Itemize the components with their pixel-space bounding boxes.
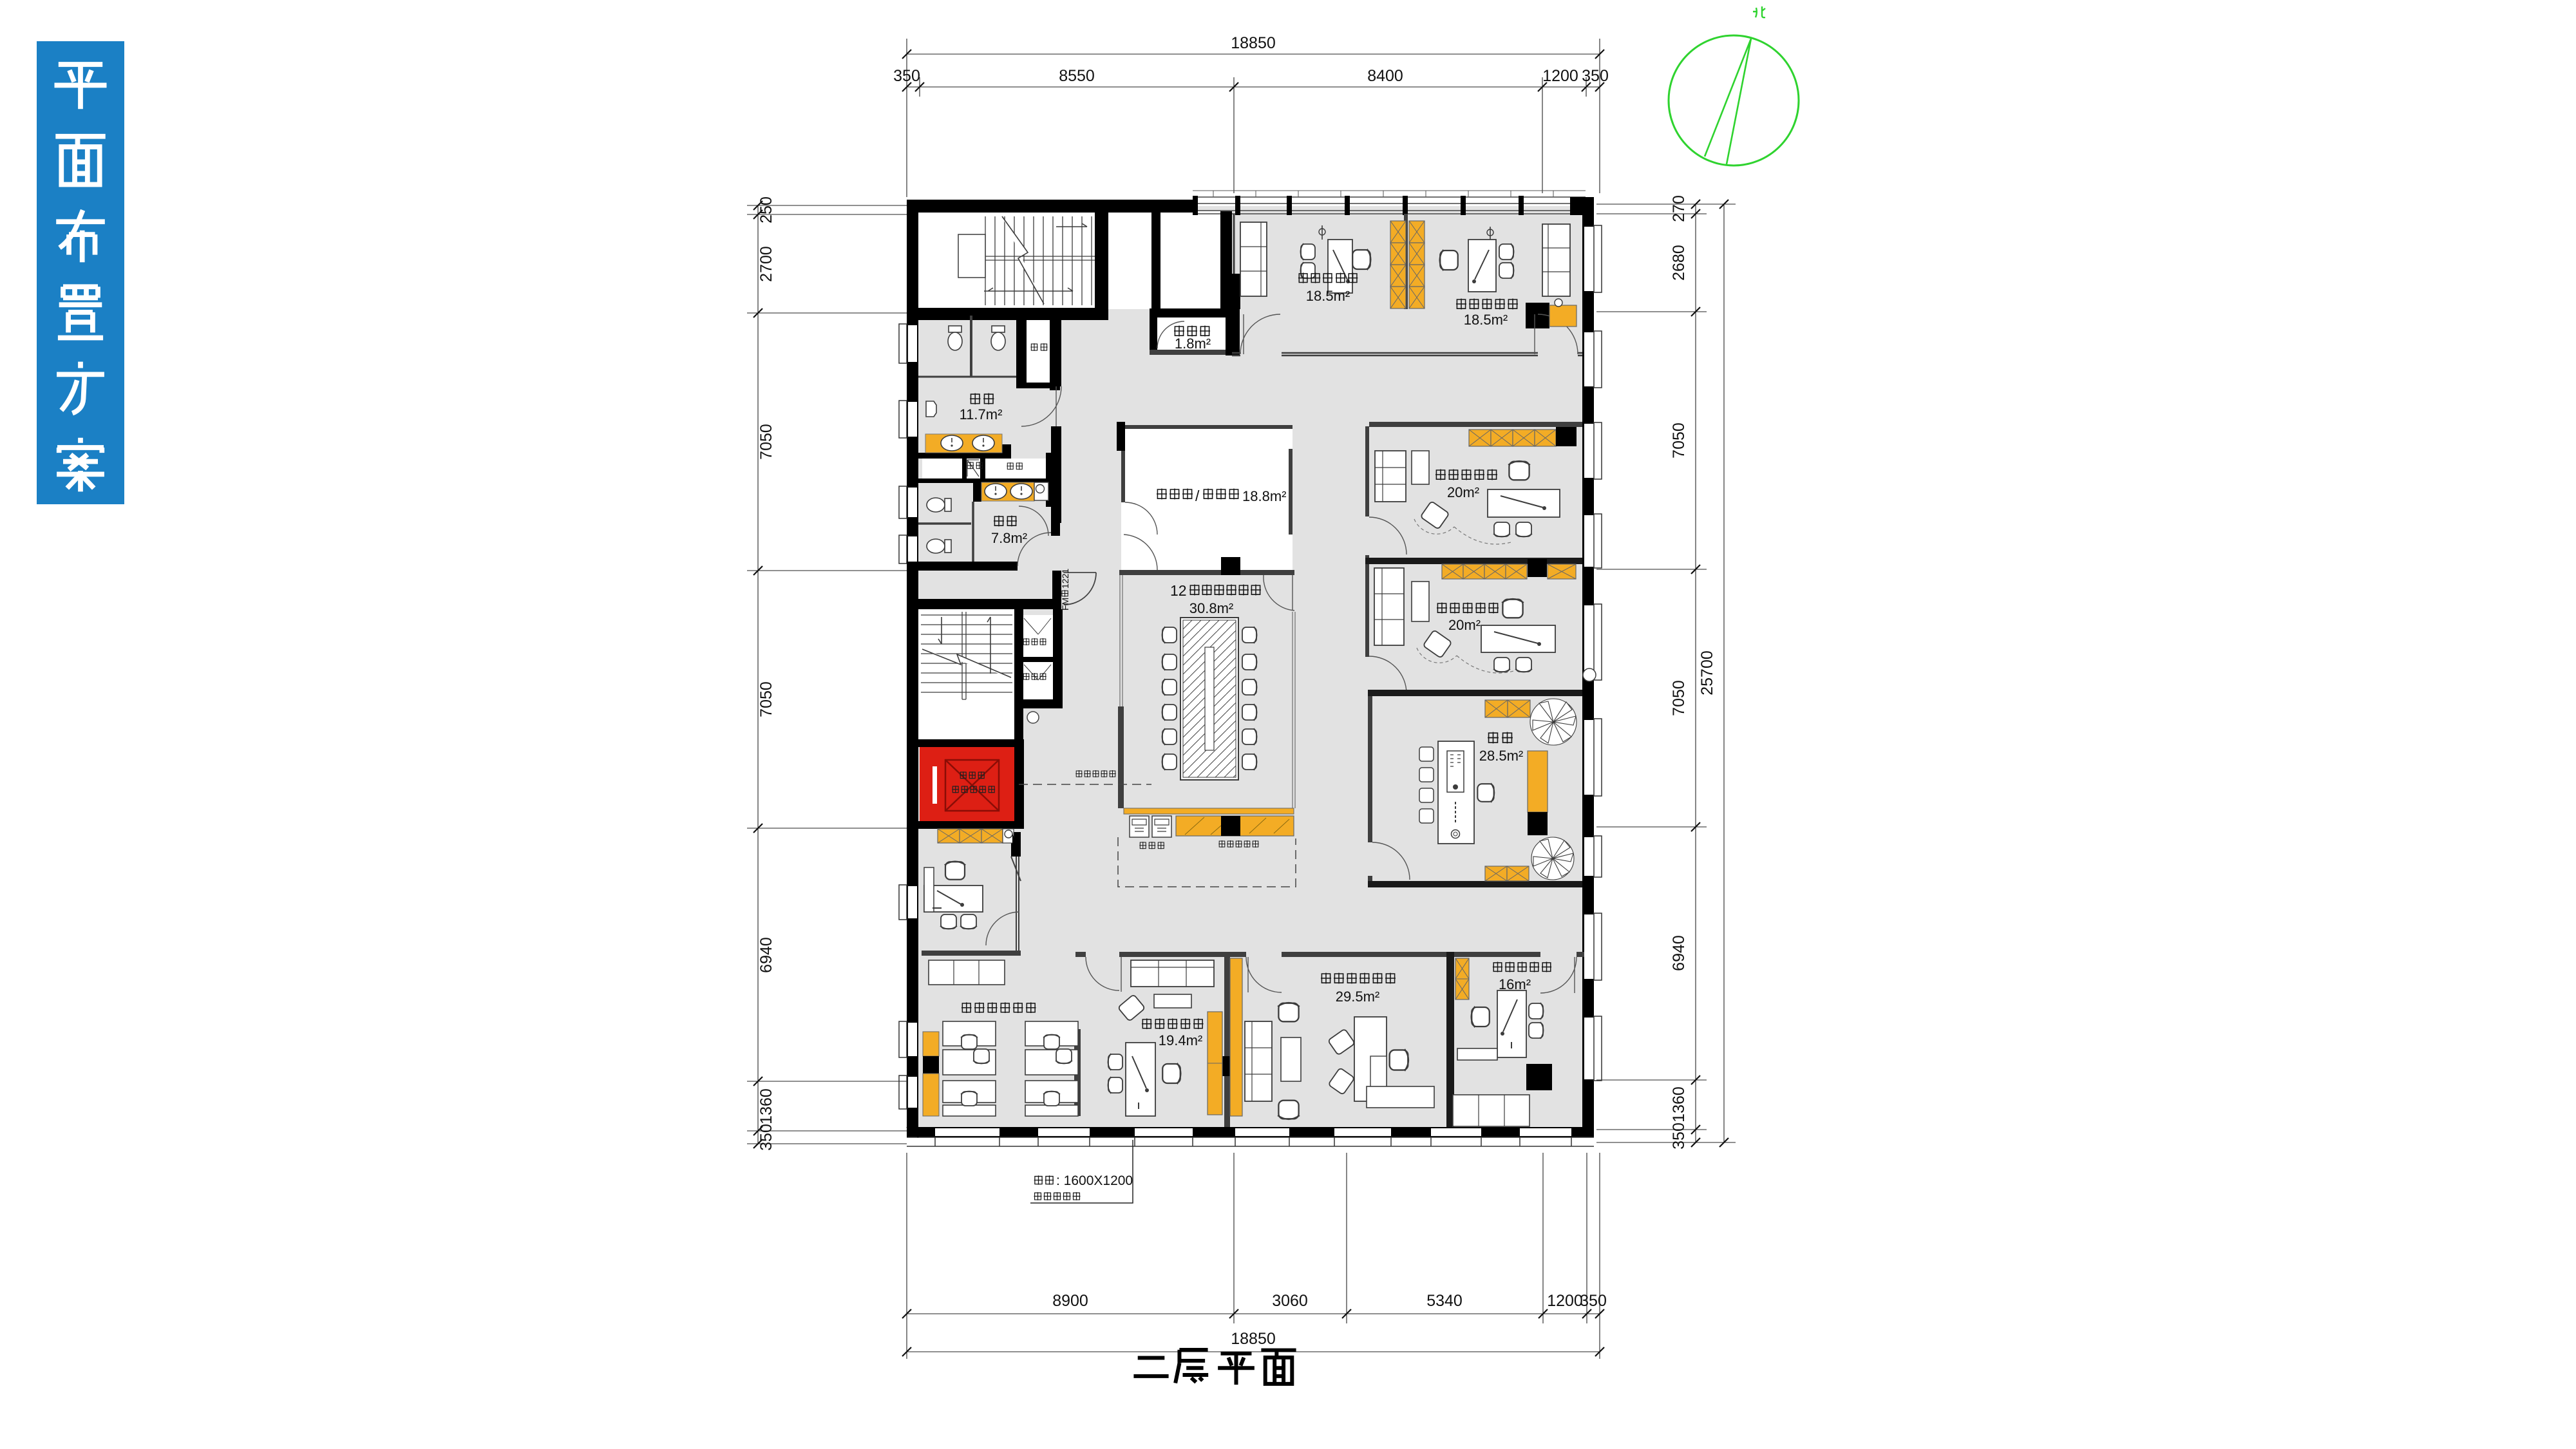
svg-text:1360: 1360 [1670, 1086, 1688, 1122]
svg-text:1221: 1221 [1060, 569, 1070, 589]
svg-text:350: 350 [757, 1124, 775, 1151]
svg-text:/: / [1195, 488, 1200, 504]
svg-text:350: 350 [1670, 1122, 1688, 1150]
svg-text:270: 270 [1670, 195, 1688, 222]
svg-text:7050: 7050 [757, 681, 775, 717]
svg-text:5340: 5340 [1426, 1292, 1463, 1310]
svg-text:18850: 18850 [1231, 34, 1276, 52]
svg-text:6940: 6940 [1670, 935, 1688, 971]
svg-text:25700: 25700 [1698, 650, 1716, 696]
svg-text:20m²: 20m² [1448, 617, 1481, 633]
svg-text:: 1600X1200: : 1600X1200 [1056, 1173, 1133, 1188]
svg-text:1200: 1200 [1547, 1292, 1583, 1310]
svg-text:7.8m²: 7.8m² [991, 530, 1027, 546]
svg-text:18.8m²: 18.8m² [1242, 488, 1286, 504]
svg-text:18.5m²: 18.5m² [1464, 312, 1508, 328]
svg-text:29.5m²: 29.5m² [1336, 989, 1379, 1005]
svg-text:12: 12 [1170, 582, 1187, 599]
svg-text:30.8m²: 30.8m² [1189, 600, 1233, 616]
svg-text:7050: 7050 [1670, 422, 1688, 459]
svg-text:1.8m²: 1.8m² [1175, 336, 1211, 352]
svg-text:7050: 7050 [1670, 680, 1688, 716]
svg-text:16m²: 16m² [1499, 976, 1531, 992]
svg-text:3060: 3060 [1272, 1292, 1308, 1310]
svg-text:8550: 8550 [1059, 67, 1095, 85]
svg-text:18850: 18850 [1231, 1330, 1276, 1348]
svg-text:250: 250 [757, 196, 775, 223]
svg-text:18.5m²: 18.5m² [1306, 288, 1350, 304]
svg-text:11.7m²: 11.7m² [960, 406, 1003, 422]
svg-text:6940: 6940 [757, 937, 775, 973]
svg-text:19.4m²: 19.4m² [1159, 1032, 1202, 1048]
svg-text:350: 350 [893, 67, 920, 85]
svg-text:350: 350 [1580, 1292, 1607, 1310]
svg-text:28.5m²: 28.5m² [1479, 748, 1523, 764]
svg-text:1200: 1200 [1542, 67, 1578, 85]
svg-text:8900: 8900 [1052, 1292, 1088, 1310]
svg-text:2680: 2680 [1670, 245, 1688, 281]
svg-text:FM: FM [1060, 598, 1070, 611]
svg-text:1360: 1360 [757, 1088, 775, 1124]
svg-text:20m²: 20m² [1447, 484, 1479, 500]
svg-text:7050: 7050 [757, 424, 775, 460]
svg-text:8400: 8400 [1367, 67, 1403, 85]
svg-text:350: 350 [1582, 67, 1609, 85]
svg-text:2700: 2700 [757, 246, 775, 282]
